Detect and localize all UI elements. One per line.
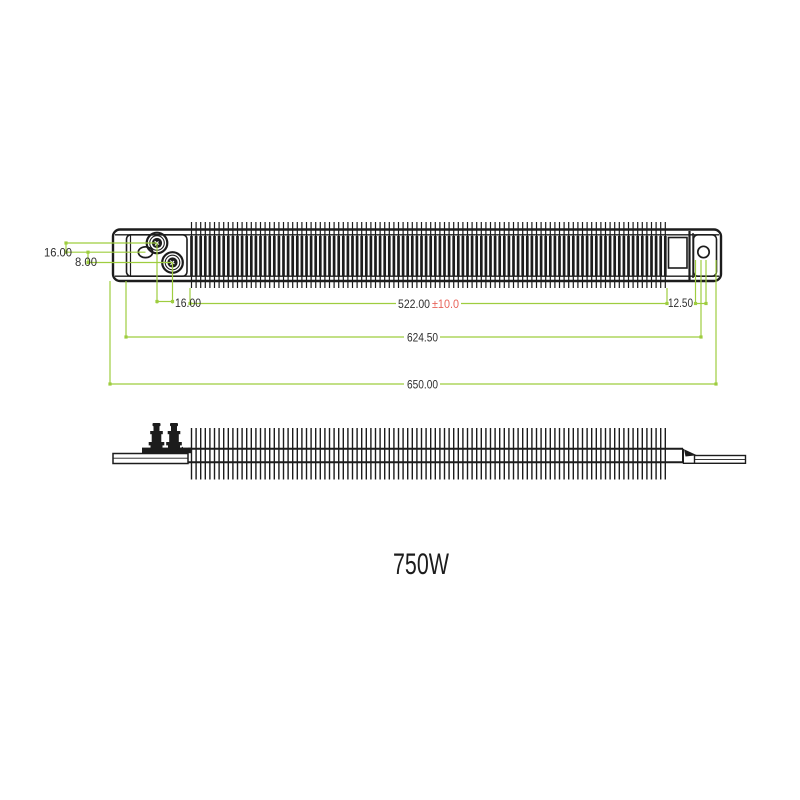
tube-end-section [669,238,688,269]
dim-label-finned-length: 522.00 [398,299,430,311]
terminal-base-plate [142,448,191,454]
dim-label-finned-length-tolerance: ±10.0 [432,299,459,311]
terminal-bolt-2 [166,423,182,448]
fin-array-top-core [192,236,666,276]
side-view [113,423,746,480]
right-mounting-hole [698,246,709,257]
technical-drawing-canvas: 16.00 8.00 16.00 522.00 ±10.0 12.50 624.… [0,0,800,800]
top-view [113,222,721,288]
technical-drawing-page: 16.00 8.00 16.00 522.00 ±10.0 12.50 624.… [0,0,800,800]
power-rating-label: 750W [393,548,449,581]
dim-label-terminal-spacing: 16.00 [175,298,201,310]
dim-label-overall-length: 650.00 [407,380,438,392]
fin-array-top [192,222,666,288]
fin-array-side [192,428,666,480]
dim-label-hole-to-end: 12.50 [668,298,693,310]
dim-label-hole-offset: 8.00 [75,257,97,269]
terminal-bolt-1 [149,423,165,448]
dim-label-terminal1-offset: 16.00 [44,248,72,260]
dim-label-hole-span: 624.50 [407,333,438,345]
right-bracket-plate [694,235,717,276]
